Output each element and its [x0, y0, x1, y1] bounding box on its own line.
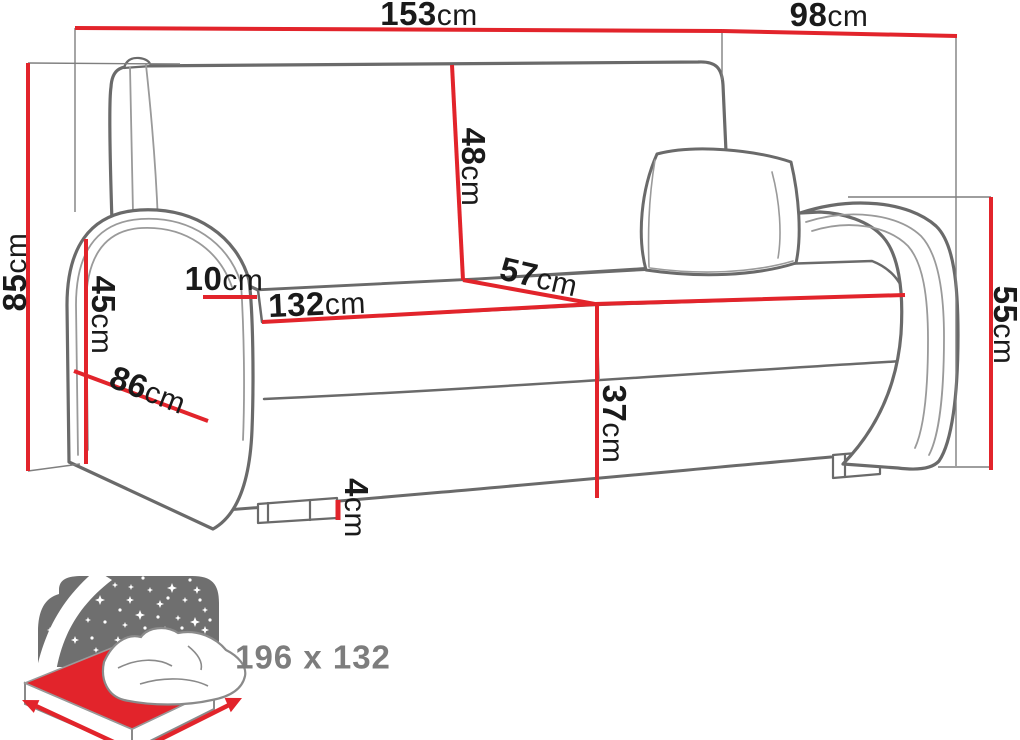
pillow-outline [641, 149, 799, 275]
bed-night-stars-icon [22, 570, 245, 740]
dim-unit: cm [338, 497, 371, 538]
dim-label-armrest-height: 45cm [86, 276, 120, 355]
star-dot-icon [103, 620, 106, 623]
dim-unit: cm [455, 165, 488, 206]
star-dot-icon [166, 596, 169, 599]
star-dot-icon [90, 586, 93, 589]
dim-unit: cm [0, 233, 33, 274]
star-dot-icon [141, 576, 144, 579]
bed-size-label: 196 x 132 [235, 641, 391, 674]
star-dot-icon [156, 615, 159, 618]
ext-line-left-horizontal [28, 63, 180, 64]
dim-label-seat-height: 37cm [597, 385, 631, 464]
dim-value: 153 [380, 0, 437, 32]
star-dot-icon [118, 608, 121, 611]
star-dot-icon [198, 598, 201, 601]
dim-value: 4 [338, 478, 375, 497]
dim-value: 98 [790, 0, 828, 33]
dim-label-overall-width: 153cm [380, 0, 478, 31]
dim-unit: cm [987, 323, 1020, 364]
dim-value: 37 [596, 385, 633, 423]
dim-label-overall-height: 85cm [0, 233, 32, 312]
star-dot-icon [143, 626, 146, 629]
cushion-front-bottom-edge [264, 361, 903, 399]
diagram-canvas [0, 0, 1020, 740]
dim-value: 85 [0, 274, 33, 312]
dim-label-armrest-width: 10cm [185, 262, 264, 296]
star-dot-icon [188, 578, 191, 581]
dim-value: 132 [267, 285, 325, 324]
star-dot-icon [68, 613, 71, 616]
dim-value: 55 [987, 286, 1020, 324]
dim-unit: cm [827, 0, 868, 33]
star-dot-icon [46, 652, 49, 655]
star-dot-icon [208, 618, 211, 621]
right-arm-outline [800, 203, 958, 469]
dim-unit: cm [85, 313, 118, 354]
dim-value: 45 [85, 276, 122, 314]
dim-value: 10 [185, 260, 223, 297]
dim-label-leg-height: 4cm [339, 478, 373, 538]
blanket-outline [103, 628, 245, 704]
dim-label-seat-width: 132cm [268, 285, 367, 323]
bed-blanket [103, 628, 245, 704]
star-dot-icon [90, 636, 93, 639]
star-dot-icon [180, 626, 183, 629]
dim-unit: cm [596, 422, 629, 463]
dim-unit: cm [222, 264, 263, 297]
dim-label-arm-outer-height: 55cm [988, 286, 1020, 365]
dim-label-overall-depth: 98cm [790, 0, 869, 32]
dim-label-backrest-height: 48cm [456, 128, 490, 207]
dim-unit: cm [324, 287, 366, 322]
ext-line-bottom-left [28, 464, 80, 471]
sofa-leg-left [258, 498, 337, 523]
dim-value: 48 [455, 128, 492, 166]
sofa-dimension-diagram: 153cm 98cm 85cm 45cm 10cm 132cm 48cm 57c… [0, 0, 1020, 740]
dim-unit: cm [437, 0, 478, 32]
